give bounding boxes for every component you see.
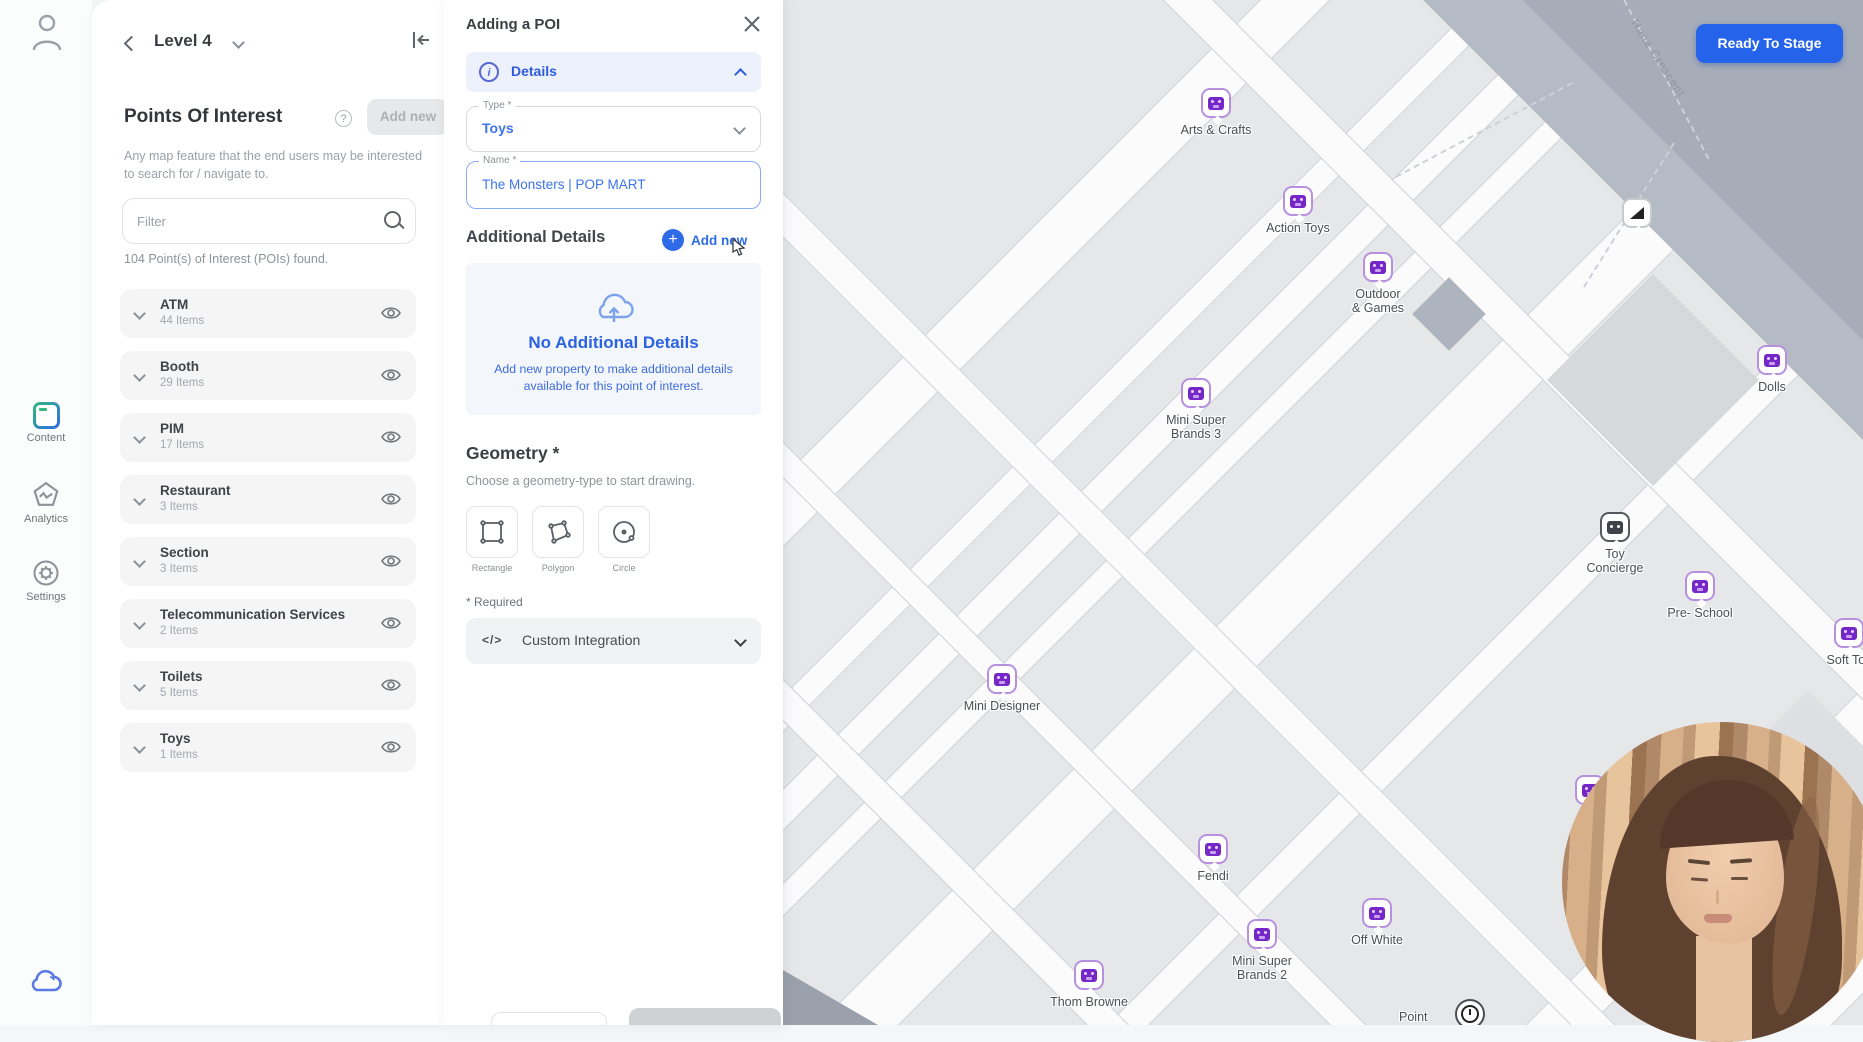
tool-label: Circle: [598, 563, 650, 573]
poi-badge-icon[interactable]: [1757, 345, 1787, 375]
adding-poi-panel: Adding a POI i Details Type * Toys Name …: [444, 0, 783, 1025]
map-poi-label: Soft Toy: [1779, 653, 1863, 667]
poi-badge-icon[interactable]: [1074, 960, 1104, 990]
map-poi-label: Outdoor & Games: [1308, 287, 1448, 316]
analytics-icon: [31, 480, 61, 510]
page-title: Points Of Interest: [124, 106, 282, 128]
chevron-down-icon[interactable]: [133, 679, 146, 692]
chevron-down-icon[interactable]: [133, 741, 146, 754]
info-icon: i: [479, 62, 499, 82]
poi-category-name: Restaurant: [160, 482, 231, 500]
sidebar-item-content[interactable]: Content: [0, 402, 92, 444]
geometry-title: Geometry *: [466, 443, 559, 464]
rail-item-label: Content: [0, 432, 92, 444]
poi-badge-icon[interactable]: [1622, 198, 1652, 228]
eye-visibility-icon[interactable]: [380, 553, 402, 569]
poi-category-name: Section: [160, 544, 209, 562]
map-poi-label: Arts & Crafts: [1146, 123, 1286, 137]
panel-description: Any map feature that the end users may b…: [124, 148, 424, 183]
map-poi-label: Pre- School: [1630, 606, 1770, 620]
poi-category-row[interactable]: Section 3 Items: [120, 537, 416, 586]
poi-category-row[interactable]: Toys 1 Items: [120, 723, 416, 772]
close-icon[interactable]: [742, 14, 762, 34]
poi-badge-icon[interactable]: [1685, 571, 1715, 601]
ready-to-stage-button[interactable]: Ready To Stage: [1696, 24, 1843, 63]
required-note: * Required: [466, 595, 523, 609]
webcam-overlay: [1562, 722, 1863, 1042]
type-select[interactable]: Type * Toys: [466, 106, 761, 152]
user-avatar-icon[interactable]: [30, 12, 64, 52]
collapse-panel-icon[interactable]: [410, 30, 432, 50]
geometry-hint: Choose a geometry-type to start drawing.: [466, 474, 695, 488]
chevron-down-icon[interactable]: [733, 122, 746, 135]
poi-badge-icon[interactable]: [1247, 919, 1277, 949]
chevron-down-icon[interactable]: [133, 307, 146, 320]
tool-label: Rectangle: [466, 563, 518, 573]
eye-visibility-icon[interactable]: [380, 677, 402, 693]
sidebar-item-analytics[interactable]: Analytics: [0, 480, 92, 525]
poi-category-row[interactable]: ATM 44 Items: [120, 289, 416, 338]
panel-title: Adding a POI: [466, 16, 560, 33]
webcam-person: [1716, 890, 1719, 904]
poi-category-name: PIM: [160, 420, 204, 438]
poi-category-list: ATM 44 Items Booth 29 Items PIM 17 Items: [120, 289, 416, 785]
app-rail: Content Analytics Settings: [0, 0, 92, 1025]
poi-category-count: 44 Items: [160, 315, 204, 327]
rectangle-icon: [478, 518, 506, 546]
gear-icon: [31, 558, 61, 588]
name-input-field[interactable]: Name * The Monsters | POP MART: [466, 161, 761, 209]
poi-badge-icon[interactable]: [1201, 88, 1231, 118]
poi-category-name: Toys: [160, 730, 198, 748]
custom-integration-accordion[interactable]: </> Custom Integration: [466, 618, 761, 664]
circle-icon: [610, 518, 638, 546]
poi-category-count: 1 Items: [160, 749, 198, 761]
poi-badge-icon[interactable]: [987, 664, 1017, 694]
webcam-person: [1731, 877, 1748, 880]
type-field-label: Type *: [479, 100, 515, 111]
mouse-cursor: [731, 238, 747, 256]
poi-badge-icon[interactable]: [1363, 252, 1393, 282]
poi-badge-icon[interactable]: [1181, 378, 1211, 408]
webcam-person: [1704, 914, 1732, 923]
tool-label: Polygon: [532, 563, 584, 573]
map-poi-label: Fendi: [1143, 869, 1283, 883]
filter-input[interactable]: [135, 200, 379, 242]
poi-category-row[interactable]: PIM 17 Items: [120, 413, 416, 462]
eye-visibility-icon[interactable]: [380, 615, 402, 631]
additional-details-title: Additional Details: [466, 228, 605, 247]
map-poi-label: Toy Concierge: [1545, 547, 1685, 576]
rail-item-label: Analytics: [0, 513, 92, 525]
results-count: 104 Point(s) of Interest (POIs) found.: [124, 252, 328, 266]
type-value: Toys: [482, 120, 514, 136]
chevron-down-icon[interactable]: [133, 369, 146, 382]
geometry-rectangle-button[interactable]: [466, 506, 518, 558]
empty-state-title: No Additional Details: [466, 333, 761, 353]
geometry-polygon-button[interactable]: [532, 506, 584, 558]
code-icon: </>: [482, 633, 502, 647]
map-poi-label: Off White: [1307, 933, 1447, 947]
poi-category-name: Booth: [160, 358, 204, 376]
name-field-label: Name *: [479, 155, 520, 166]
empty-state-text: Add new property to make additional deta…: [486, 361, 741, 395]
sidebar-item-settings[interactable]: Settings: [0, 558, 92, 603]
rail-item-label: Settings: [0, 591, 92, 603]
chevron-up-icon[interactable]: [734, 68, 747, 81]
map-poi-label: Mini Super Brands 2: [1192, 954, 1332, 983]
poi-category-name: Toilets: [160, 668, 203, 686]
chevron-down-icon[interactable]: [734, 634, 747, 647]
details-accordion-header[interactable]: i Details: [466, 52, 761, 92]
eye-visibility-icon[interactable]: [380, 739, 402, 755]
map-poi-label: Mini Designer: [932, 699, 1072, 713]
cancel-button-partial[interactable]: [491, 1012, 607, 1025]
poi-category-row[interactable]: Booth 29 Items: [120, 351, 416, 400]
map-clipped-label: Point: [1399, 1010, 1428, 1024]
poi-category-count: 29 Items: [160, 377, 204, 389]
eye-visibility-icon[interactable]: [380, 491, 402, 507]
integration-label: Custom Integration: [522, 632, 640, 648]
cloud-upload-icon: [592, 289, 636, 325]
plus-icon: +: [662, 229, 684, 251]
add-new-poi-button[interactable]: Add new: [367, 99, 449, 135]
poi-category-count: 3 Items: [160, 501, 231, 513]
poi-category-count: 3 Items: [160, 563, 209, 575]
filter-field[interactable]: [122, 198, 416, 244]
chevron-down-icon[interactable]: [133, 431, 146, 444]
poi-category-name: ATM: [160, 296, 204, 314]
poi-badge-icon[interactable]: [1834, 618, 1863, 648]
level-caret-icon[interactable]: [232, 36, 245, 49]
map-poi-label: Dolls: [1702, 380, 1842, 394]
webcam-person: [1696, 936, 1752, 1042]
chevron-down-icon[interactable]: [133, 555, 146, 568]
poi-badge-icon[interactable]: [1455, 999, 1485, 1025]
poi-badge-icon[interactable]: [1600, 512, 1630, 542]
poi-category-name: Telecommunication Services: [160, 606, 345, 624]
chevron-down-icon[interactable]: [133, 493, 146, 506]
poi-list-panel: Level 4 Points Of Interest ? Add new Any…: [92, 0, 444, 1025]
map-poi-label: Thom Browne: [1019, 995, 1159, 1009]
content-icon: [33, 402, 60, 429]
poi-badge-icon[interactable]: [1198, 834, 1228, 864]
eye-visibility-icon[interactable]: [380, 305, 402, 321]
poi-badge-icon[interactable]: [1362, 898, 1392, 928]
map-poi-label: Mini Super Brands 3: [1126, 413, 1266, 442]
details-label: Details: [511, 63, 557, 79]
poi-category-row[interactable]: Restaurant 3 Items: [120, 475, 416, 524]
chevron-down-icon[interactable]: [133, 617, 146, 630]
name-value: The Monsters | POP MART: [482, 177, 646, 192]
cloud-sync-icon[interactable]: [28, 966, 64, 994]
polygon-icon: [544, 518, 572, 546]
save-button-partial[interactable]: [629, 1008, 781, 1025]
no-additional-details-card: No Additional Details Add new property t…: [466, 263, 761, 415]
map-poi-label: Action Toys: [1228, 221, 1368, 235]
help-icon[interactable]: ?: [335, 110, 352, 127]
geometry-circle-button[interactable]: [598, 506, 650, 558]
poi-badge-icon[interactable]: [1283, 186, 1313, 216]
search-icon: [384, 211, 401, 228]
poi-category-count: 2 Items: [160, 625, 345, 637]
level-selector[interactable]: Level 4: [154, 31, 212, 51]
eye-visibility-icon[interactable]: [380, 367, 402, 383]
poi-category-row[interactable]: Toilets 5 Items: [120, 661, 416, 710]
poi-category-count: 17 Items: [160, 439, 204, 451]
back-chevron-icon[interactable]: [124, 36, 140, 52]
poi-category-row[interactable]: Telecommunication Services 2 Items: [120, 599, 416, 648]
eye-visibility-icon[interactable]: [380, 429, 402, 445]
poi-category-count: 5 Items: [160, 687, 203, 699]
